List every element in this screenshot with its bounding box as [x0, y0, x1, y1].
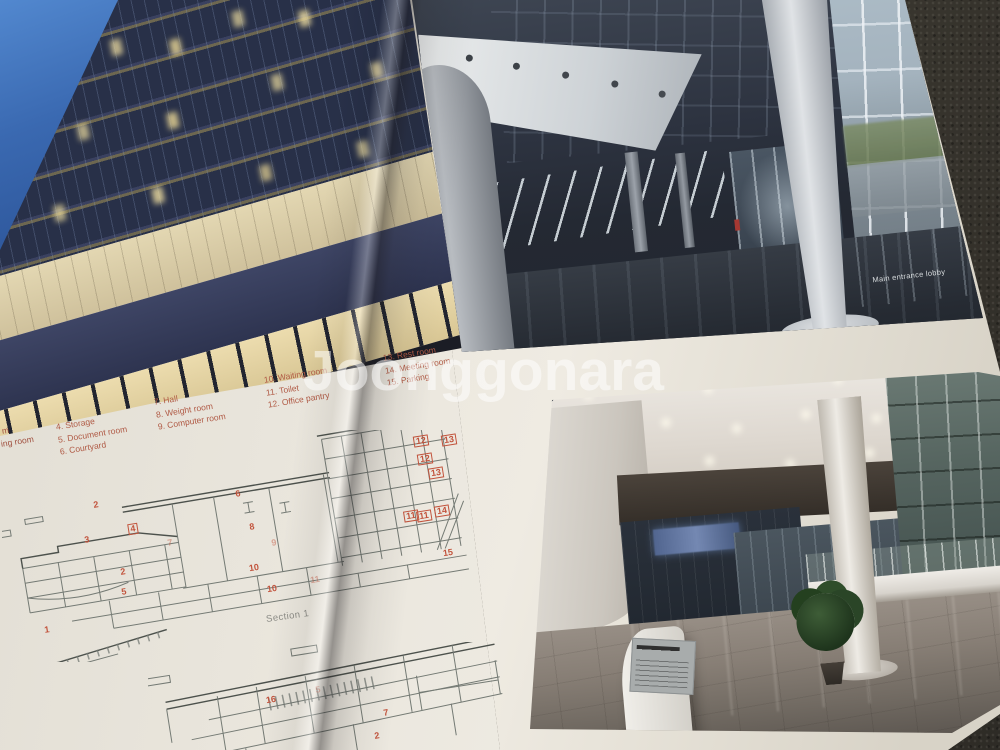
room-number: 13 [441, 433, 458, 446]
kiosk-sign-panel [629, 638, 696, 695]
room-number: 14 [434, 504, 451, 517]
fire-extinguisher [734, 219, 740, 230]
room-number: 10 [248, 563, 259, 573]
room-number: 11 [416, 509, 432, 522]
watermark: Joonggonara [303, 338, 664, 404]
room-number: 15 [442, 548, 453, 558]
book-spread-photo: Main entrance lobby m ing room 4 [0, 0, 1000, 750]
room-number: 10 [266, 584, 277, 594]
room-number: 13 [428, 466, 445, 479]
room-number: 4 [127, 523, 139, 535]
